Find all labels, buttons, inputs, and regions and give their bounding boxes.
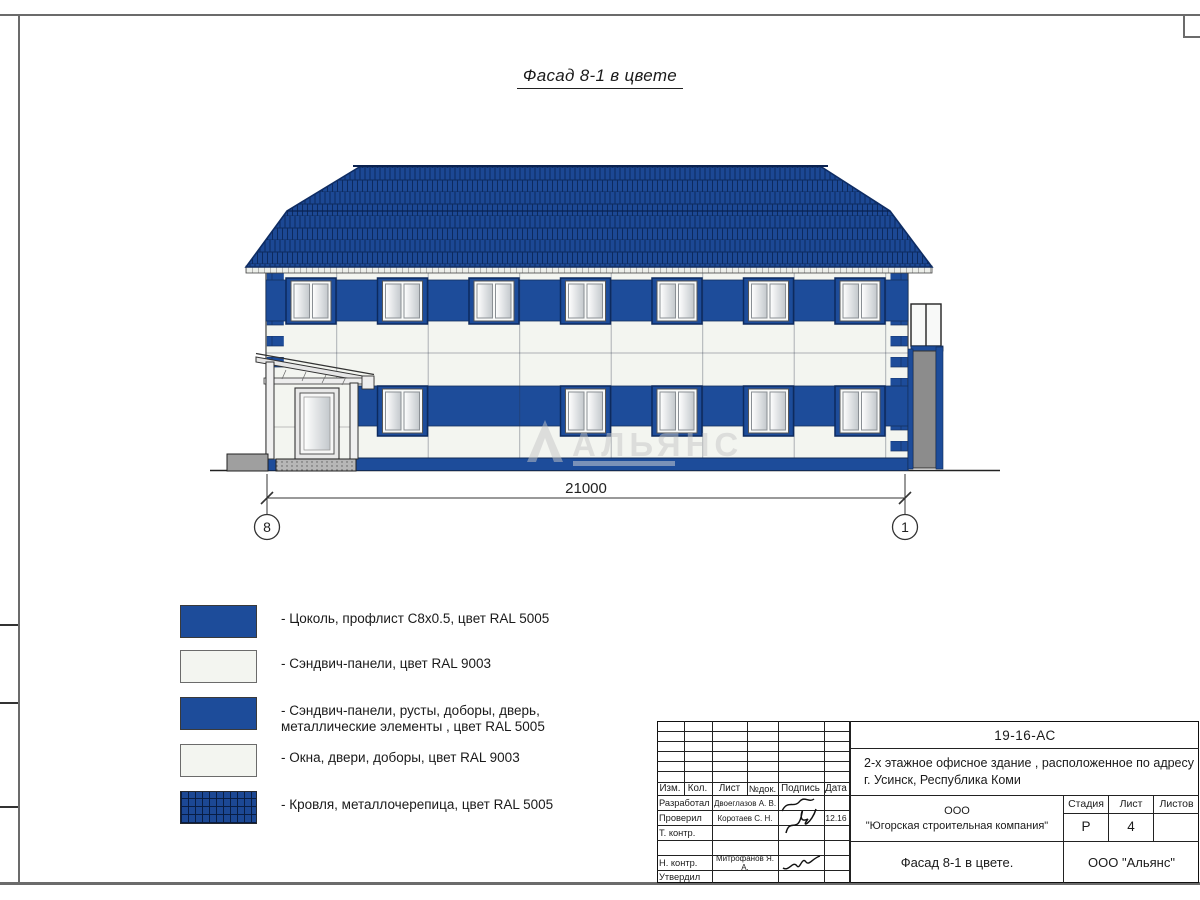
tb-doc-number: 19-16-АС bbox=[851, 722, 1199, 748]
tb-grid bbox=[657, 731, 850, 732]
window bbox=[378, 386, 428, 436]
tb-grid bbox=[657, 761, 850, 762]
legend-swatch-sandwich bbox=[180, 650, 257, 683]
tb-grid bbox=[657, 741, 850, 742]
legend-label: - Сэндвич-панели, русты, доборы, дверь, bbox=[281, 703, 540, 718]
axis-label-right: 1 bbox=[901, 519, 909, 535]
tb-sheet-value: 4 bbox=[1109, 813, 1153, 840]
tb-name: Коротаев С. Н. bbox=[712, 811, 778, 825]
watermark-text: АЛЬЯНС bbox=[572, 426, 743, 463]
tb-header-podpis: Подпись bbox=[778, 782, 823, 795]
legend-item: - Сэндвич-панели, русты, доборы, дверь, … bbox=[180, 697, 545, 735]
facade-drawing: АЛЬЯНС bbox=[0, 0, 1200, 560]
tb-stage-label: Стадия bbox=[1064, 796, 1108, 812]
right-annex bbox=[908, 304, 943, 469]
window bbox=[286, 278, 336, 324]
tb-date: 12.16 bbox=[823, 811, 849, 825]
tb-project-line2: г. Усинск, Республика Коми bbox=[864, 772, 1194, 789]
frame-fold-mark bbox=[0, 702, 18, 704]
window bbox=[835, 386, 885, 436]
walkway bbox=[227, 454, 268, 471]
legend-swatch-windows bbox=[180, 744, 257, 777]
window bbox=[744, 386, 794, 436]
legend-swatch-plinth bbox=[180, 605, 257, 638]
drawing-sheet: Фасад 8-1 в цвете bbox=[0, 0, 1200, 900]
tb-company-line1: ООО bbox=[866, 804, 1048, 819]
signature bbox=[780, 852, 824, 874]
window bbox=[378, 278, 428, 324]
window bbox=[744, 278, 794, 324]
tb-header-izm: Изм. bbox=[657, 782, 683, 795]
tb-sheets-value bbox=[1154, 813, 1199, 840]
tb-header-kol: Кол. bbox=[684, 782, 711, 795]
window bbox=[469, 278, 519, 324]
tb-role: Т. контр. bbox=[659, 826, 711, 840]
tb-company-line2: "Югорская строительная компания" bbox=[866, 819, 1048, 834]
dimension-value: 21000 bbox=[565, 480, 607, 497]
tb-grid bbox=[657, 751, 850, 752]
window bbox=[835, 278, 885, 324]
legend-item: - Сэндвич-панели, цвет RAL 9003 bbox=[180, 650, 491, 683]
porch-post-right bbox=[350, 383, 358, 459]
tb-role: Утвердил bbox=[659, 871, 711, 883]
signature bbox=[778, 795, 824, 840]
frame-fold-mark bbox=[0, 624, 18, 626]
tb-company: ООО "Югорская строительная компания" bbox=[851, 796, 1063, 841]
tb-sheets-label: Листов bbox=[1154, 796, 1199, 812]
porch-platform bbox=[276, 459, 356, 471]
porch-post-left bbox=[266, 362, 274, 459]
frame-fold-mark bbox=[0, 806, 18, 808]
legend-label: - Сэндвич-панели, цвет RAL 9003 bbox=[281, 656, 491, 671]
tb-grid bbox=[657, 771, 850, 772]
legend-swatch-rustication bbox=[180, 697, 257, 730]
tb-drawing-title: Фасад 8-1 в цвете. bbox=[851, 842, 1063, 882]
tb-name: Двоеглазов А. В. bbox=[712, 796, 778, 810]
tb-header-ndok: №док. bbox=[747, 782, 778, 795]
legend-label-line2: металлические элементы , цвет RAL 5005 bbox=[281, 719, 545, 734]
tb-project-name: 2-х этажное офисное здание , расположенн… bbox=[851, 749, 1200, 794]
window bbox=[652, 278, 702, 324]
legend-label: - Окна, двери, доборы, цвет RAL 9003 bbox=[281, 750, 520, 765]
tb-role: Проверил bbox=[659, 811, 711, 825]
legend-item: - Цоколь, профлист С8х0.5, цвет RAL 5005 bbox=[180, 605, 549, 638]
legend-label: - Кровля, металлочерепица, цвет RAL 5005 bbox=[281, 797, 553, 812]
tb-stage-value: Р bbox=[1064, 813, 1108, 840]
axis-label-left: 8 bbox=[263, 519, 271, 535]
roof bbox=[246, 166, 932, 273]
legend-item: - Окна, двери, доборы, цвет RAL 9003 bbox=[180, 744, 520, 777]
entrance-door bbox=[295, 388, 339, 459]
legend-label: - Цоколь, профлист С8х0.5, цвет RAL 5005 bbox=[281, 611, 549, 626]
tb-sheet-label: Лист bbox=[1109, 796, 1153, 812]
tb-project-line1: 2-х этажное офисное здание , расположенн… bbox=[864, 755, 1194, 772]
tb-role: Разработал bbox=[659, 796, 711, 810]
legend-item: - Кровля, металлочерепица, цвет RAL 5005 bbox=[180, 791, 553, 824]
tb-header-list: Лист bbox=[712, 782, 747, 795]
window bbox=[561, 278, 611, 324]
tb-role bbox=[659, 841, 711, 855]
tb-contractor: ООО "Альянс" bbox=[1064, 842, 1199, 882]
tb-name: Митрофанов Я. А. bbox=[712, 856, 778, 870]
annex-shaft bbox=[913, 351, 936, 468]
legend-swatch-roof bbox=[180, 791, 257, 824]
tb-role: Н. контр. bbox=[659, 856, 711, 870]
tb-header-data: Дата bbox=[823, 782, 849, 795]
